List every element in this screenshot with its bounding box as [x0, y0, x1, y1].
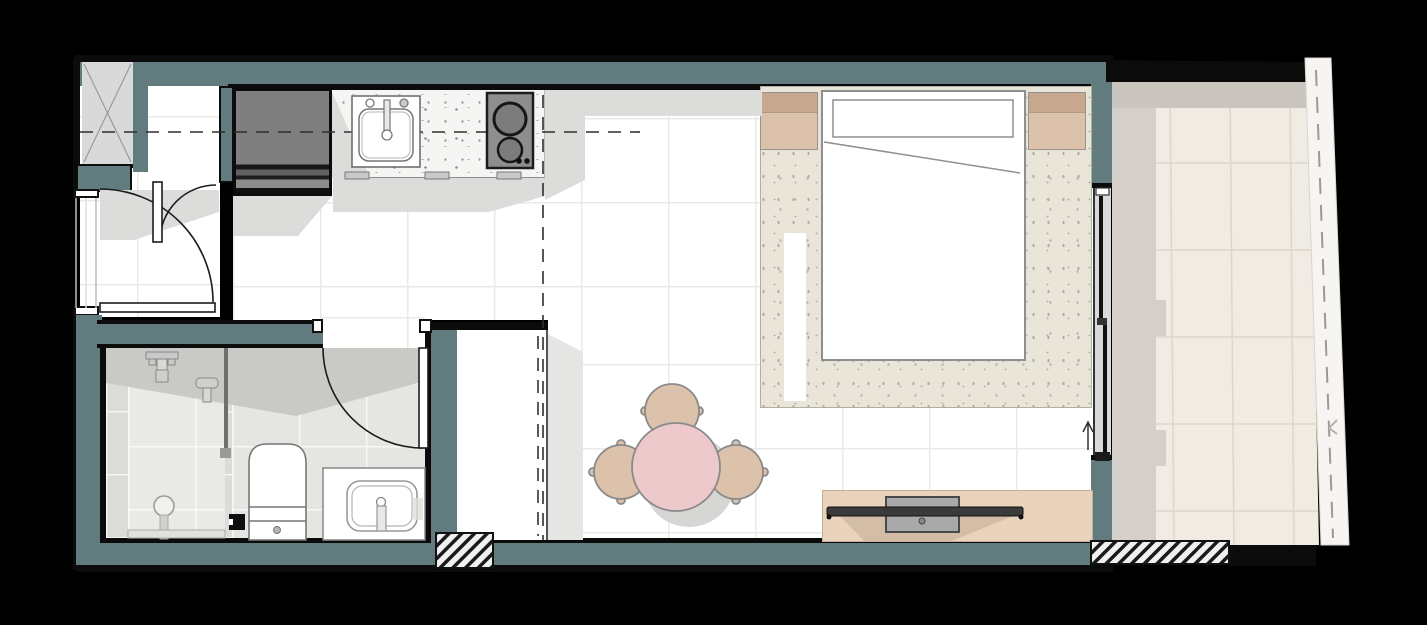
balustrade-glass-line — [1316, 70, 1333, 538]
nightstand-left-top — [761, 93, 817, 113]
wall-below-shaft — [76, 164, 132, 192]
bathroom-left-wall — [76, 315, 102, 565]
right-wall-lower — [1091, 460, 1113, 545]
balcony-bottom-wall — [1228, 545, 1316, 566]
top-wall — [80, 62, 1111, 86]
balustrade — [1305, 58, 1349, 545]
bathroom-top-wall — [97, 320, 323, 348]
tv-console — [822, 490, 1093, 542]
kitchen-countertop — [333, 90, 545, 178]
utility-shaft — [82, 62, 133, 168]
nightstand-left — [760, 92, 818, 150]
bathroom-floor-right-zone — [232, 383, 425, 538]
balustrade-chevron — [1329, 420, 1337, 434]
nightstand-right-top — [1029, 93, 1085, 113]
bathroom-left-inner-line — [100, 343, 106, 543]
sliding-door-track — [1093, 188, 1111, 462]
bottom-wall — [80, 543, 1113, 565]
floor-plan — [0, 0, 1427, 625]
window-sill-upper — [74, 189, 99, 198]
refrigerator — [233, 88, 332, 196]
shaft-side-wall — [133, 62, 148, 172]
balcony-top-wall — [1106, 60, 1311, 82]
balcony-shadow-top — [1112, 82, 1310, 108]
entry-kitchen-divider-wall — [219, 86, 234, 183]
shower-floor — [128, 383, 225, 538]
bottom-wall-outer-line — [76, 565, 1113, 572]
double-bed — [821, 90, 1026, 361]
balcony-tile-lines — [1112, 82, 1318, 545]
bathroom-door-jamb-left — [312, 319, 323, 333]
wardrobe — [457, 330, 548, 540]
floor-at-bathroom-door — [322, 317, 425, 348]
top-wall-outer-line — [75, 55, 1113, 62]
balcony-shadow-left — [1112, 108, 1156, 545]
nightstand-right — [1028, 92, 1086, 150]
bed-runner — [784, 233, 806, 401]
right-wall-upper — [1091, 62, 1113, 188]
wardrobe-top-line — [431, 322, 548, 330]
balcony — [1106, 58, 1349, 566]
balcony-floor — [1112, 68, 1319, 545]
right-wall-lower-cap — [1091, 455, 1113, 460]
wardrobe-side-wall — [431, 328, 457, 543]
